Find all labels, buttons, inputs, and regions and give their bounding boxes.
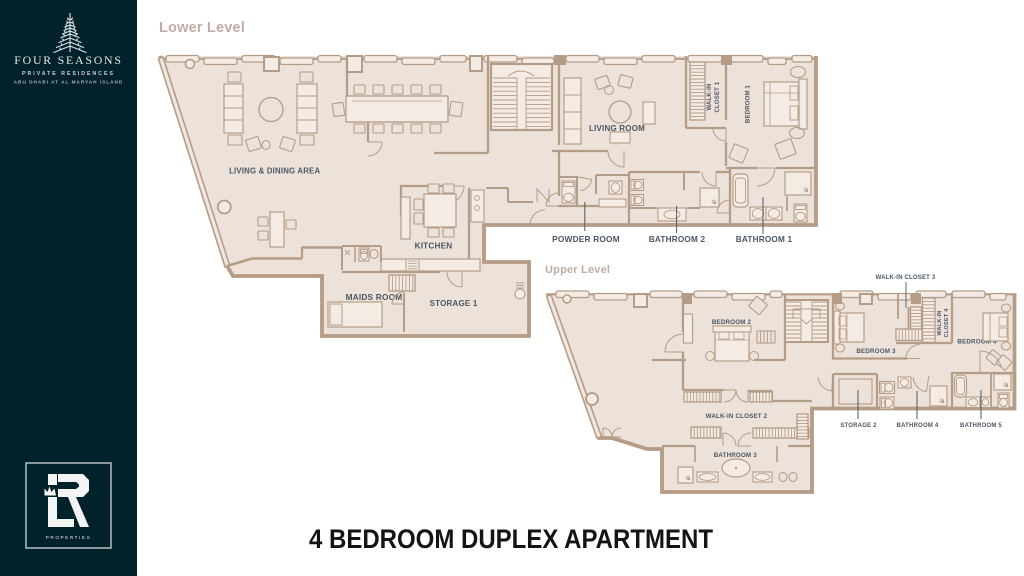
svg-text:Upper Level: Upper Level	[545, 264, 610, 276]
svg-text:4 BEDROOM DUPLEX APARTMENT: 4 BEDROOM DUPLEX APARTMENT	[309, 524, 713, 554]
svg-text:KITCHEN: KITCHEN	[415, 242, 453, 251]
svg-text:FOUR SEASONS: FOUR SEASONS	[14, 53, 122, 67]
svg-text:BATHROOM 4: BATHROOM 4	[897, 423, 939, 429]
svg-text:WALK-IN: WALK-IN	[707, 83, 713, 110]
svg-text:BATHROOM 2: BATHROOM 2	[649, 235, 706, 244]
svg-text:WALK-IN CLOSET 3: WALK-IN CLOSET 3	[876, 275, 936, 281]
svg-text:PROPERTIES: PROPERTIES	[46, 535, 92, 540]
svg-text:BATHROOM 5: BATHROOM 5	[960, 423, 1002, 429]
svg-text:WALK-IN CLOSET 2: WALK-IN CLOSET 2	[706, 413, 768, 420]
svg-text:BATHROOM 1: BATHROOM 1	[736, 235, 793, 244]
svg-text:BEDROOM 2: BEDROOM 2	[712, 319, 752, 326]
svg-text:PRIVATE RESIDENCES: PRIVATE RESIDENCES	[22, 71, 115, 77]
svg-text:BATHROOM 3: BATHROOM 3	[714, 452, 757, 459]
svg-text:LIVING & DINING AREA: LIVING & DINING AREA	[229, 167, 320, 176]
svg-text:STORAGE 1: STORAGE 1	[430, 299, 478, 308]
svg-text:CLOSET 1: CLOSET 1	[715, 81, 721, 112]
svg-text:WALK-IN: WALK-IN	[937, 310, 943, 335]
svg-text:BEDROOM 3: BEDROOM 3	[856, 348, 896, 355]
svg-text:ABU DHABI AT AL MARYAH ISLAND: ABU DHABI AT AL MARYAH ISLAND	[14, 80, 124, 85]
svg-text:STORAGE 2: STORAGE 2	[840, 423, 877, 429]
svg-text:Lower Level: Lower Level	[159, 20, 245, 36]
svg-text:BEDROOM 1: BEDROOM 1	[746, 84, 752, 123]
svg-text:POWDER ROOM: POWDER ROOM	[552, 234, 620, 244]
svg-text:CLOSET 4: CLOSET 4	[944, 308, 950, 338]
